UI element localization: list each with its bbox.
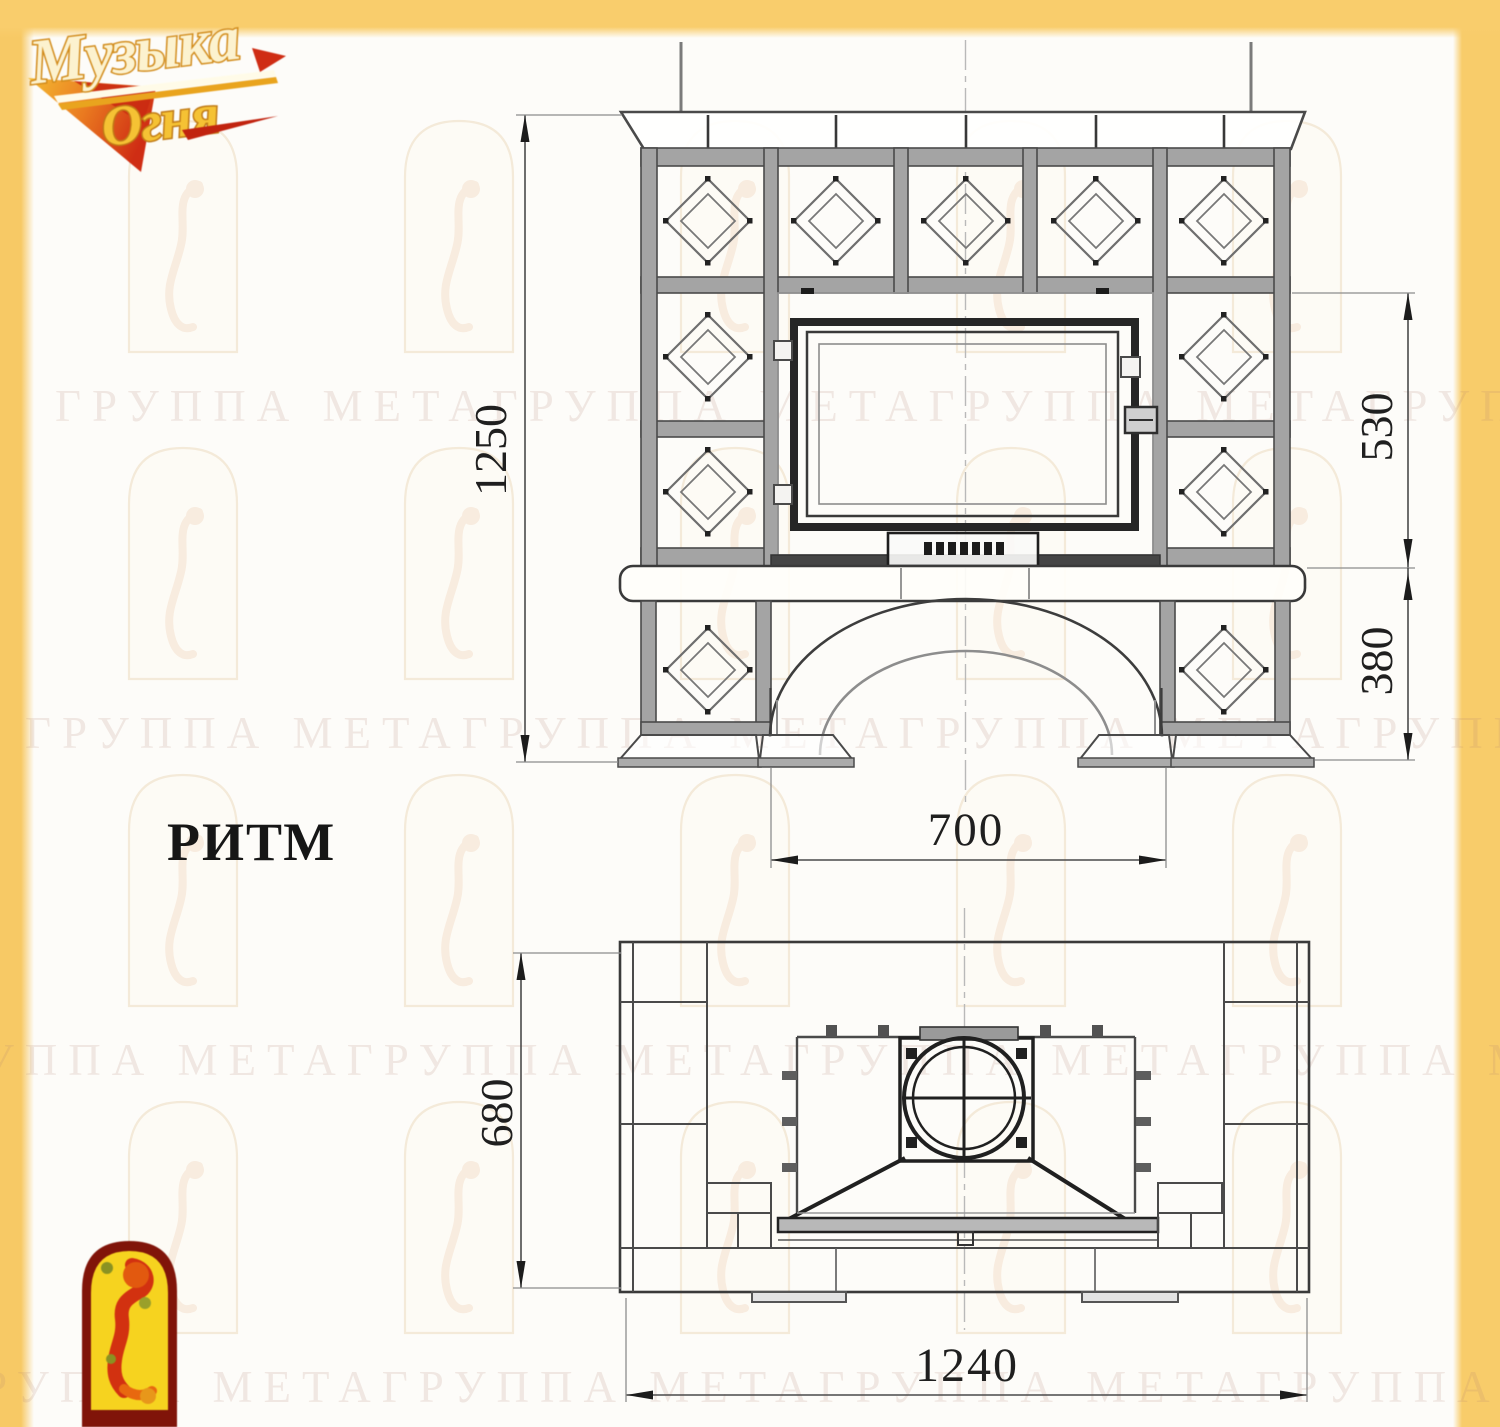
svg-text:РИТМ: РИТМ (167, 812, 336, 872)
svg-text:1250: 1250 (465, 404, 516, 496)
svg-text:1240: 1240 (915, 1339, 1019, 1392)
svg-text:680: 680 (471, 1079, 522, 1148)
svg-text:700: 700 (928, 804, 1005, 856)
svg-text:380: 380 (1351, 627, 1402, 696)
svg-text:530: 530 (1351, 393, 1402, 462)
svg-text:Огня: Огня (98, 83, 222, 159)
